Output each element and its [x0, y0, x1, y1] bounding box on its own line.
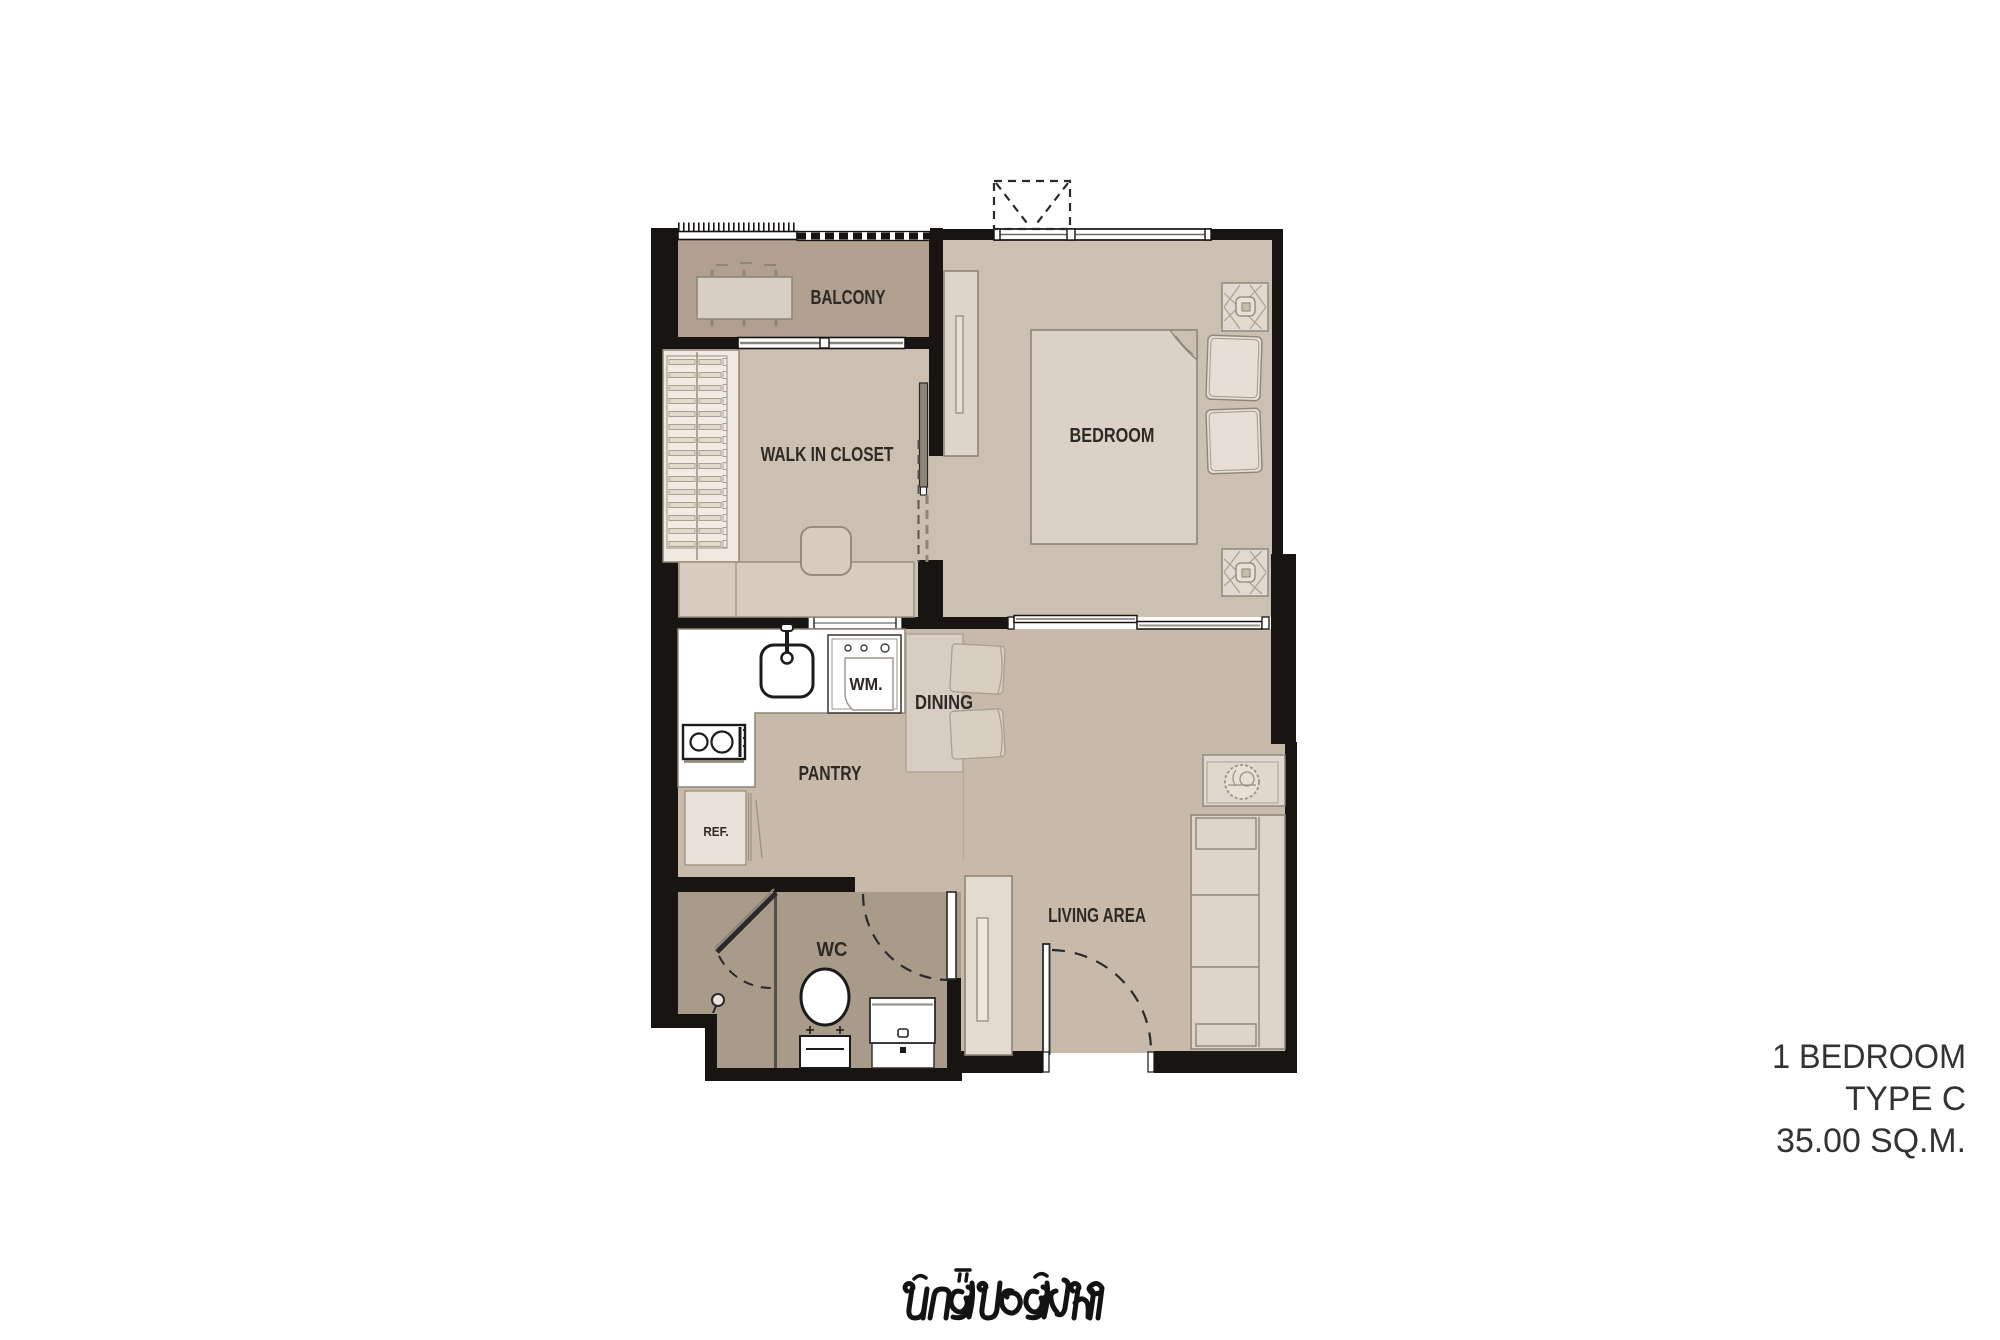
svg-text:WM.: WM. [849, 674, 882, 694]
svg-text:PANTRY: PANTRY [798, 762, 861, 784]
svg-text:1 BEDROOM: 1 BEDROOM [1772, 1038, 1966, 1076]
svg-text:TYPE C: TYPE C [1845, 1080, 1966, 1118]
svg-text:BEDROOM: BEDROOM [1070, 424, 1155, 446]
svg-text:WC: WC [817, 939, 848, 961]
svg-text:BALCONY: BALCONY [811, 286, 886, 309]
svg-text:DINING: DINING [915, 690, 973, 713]
svg-text:35.00 SQ.M.: 35.00 SQ.M. [1776, 1122, 1966, 1160]
svg-text:LIVING AREA: LIVING AREA [1048, 904, 1146, 926]
svg-text:WALK IN CLOSET: WALK IN CLOSET [761, 443, 894, 465]
svg-text:REF.: REF. [703, 824, 728, 839]
